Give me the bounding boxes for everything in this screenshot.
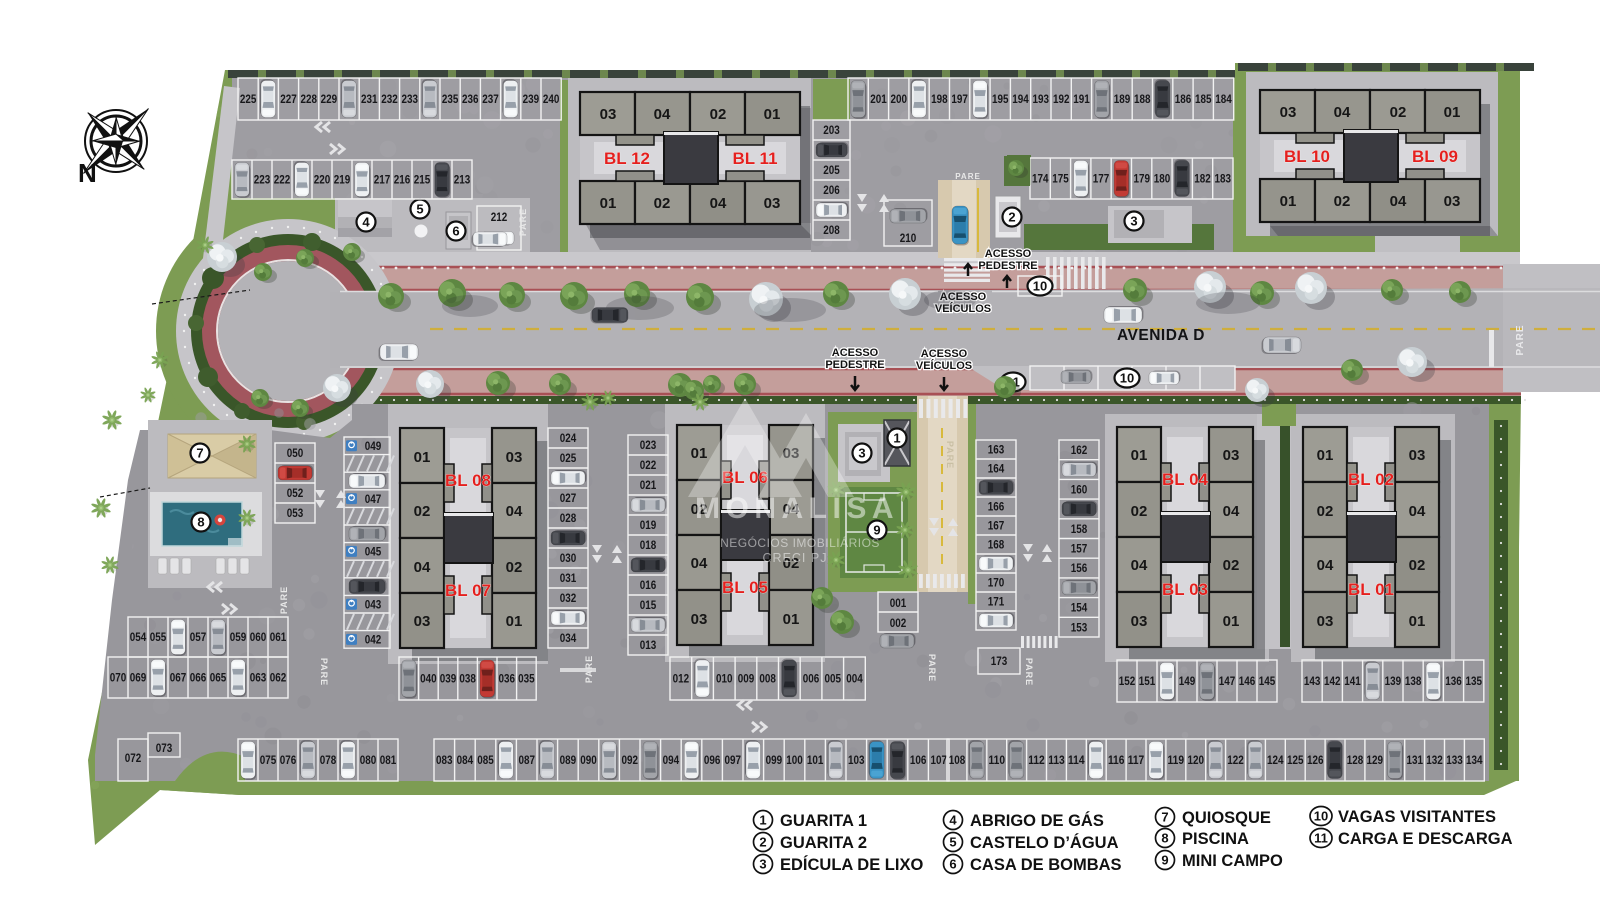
svg-text:151: 151	[1139, 676, 1156, 688]
svg-text:02: 02	[1131, 503, 1148, 520]
svg-text:02: 02	[1223, 557, 1240, 574]
svg-text:087: 087	[518, 755, 535, 767]
svg-text:PARE: PARE	[1515, 324, 1526, 355]
svg-text:067: 067	[170, 673, 187, 685]
svg-text:103: 103	[848, 755, 865, 767]
svg-text:042: 042	[365, 635, 382, 647]
svg-text:192: 192	[1053, 94, 1070, 106]
svg-text:021: 021	[640, 480, 657, 492]
svg-text:03: 03	[1444, 193, 1461, 210]
svg-text:AVENIDA D: AVENIDA D	[1117, 327, 1205, 344]
svg-text:125: 125	[1287, 755, 1304, 767]
svg-text:04: 04	[1223, 503, 1240, 520]
svg-text:053: 053	[287, 508, 304, 520]
svg-text:154: 154	[1071, 603, 1088, 615]
svg-text:031: 031	[560, 573, 577, 585]
svg-text:CRECI PJ: CRECI PJ	[763, 551, 828, 565]
svg-text:066: 066	[190, 673, 207, 685]
svg-text:162: 162	[1071, 445, 1088, 457]
svg-text:PARE: PARE	[927, 654, 937, 682]
svg-text:183: 183	[1215, 174, 1232, 186]
svg-text:004: 004	[846, 674, 863, 686]
svg-text:092: 092	[621, 755, 638, 767]
svg-text:016: 016	[640, 580, 657, 592]
svg-text:096: 096	[704, 755, 721, 767]
svg-text:198: 198	[931, 94, 948, 106]
svg-text:175: 175	[1052, 174, 1069, 186]
svg-text:203: 203	[823, 125, 840, 137]
svg-text:160: 160	[1071, 484, 1088, 496]
svg-text:04: 04	[710, 195, 727, 212]
svg-text:04: 04	[1317, 557, 1334, 574]
svg-text:PARE: PARE	[945, 441, 955, 469]
svg-text:034: 034	[560, 633, 577, 645]
svg-text:3: 3	[1130, 214, 1137, 229]
svg-text:PEDESTRE: PEDESTRE	[978, 260, 1037, 272]
svg-text:03: 03	[764, 195, 781, 212]
svg-text:108: 108	[949, 755, 966, 767]
svg-text:231: 231	[361, 94, 378, 106]
svg-text:233: 233	[401, 94, 418, 106]
svg-text:PARE: PARE	[518, 208, 528, 236]
svg-text:070: 070	[110, 673, 127, 685]
svg-text:120: 120	[1188, 755, 1205, 767]
svg-text:062: 062	[270, 673, 287, 685]
svg-text:132: 132	[1426, 755, 1443, 767]
svg-text:BL 08: BL 08	[445, 471, 491, 490]
svg-text:3: 3	[759, 857, 766, 872]
svg-text:BL 02: BL 02	[1348, 470, 1394, 489]
svg-text:170: 170	[988, 578, 1005, 590]
svg-text:164: 164	[988, 464, 1005, 476]
svg-text:2: 2	[759, 835, 766, 850]
svg-text:02: 02	[414, 503, 431, 520]
svg-text:CASTELO D’ÁGUA: CASTELO D’ÁGUA	[970, 833, 1119, 852]
svg-text:01: 01	[1131, 447, 1148, 464]
svg-text:4: 4	[362, 215, 370, 230]
svg-text:039: 039	[440, 674, 457, 686]
svg-text:008: 008	[759, 674, 776, 686]
svg-text:081: 081	[380, 755, 397, 767]
svg-text:009: 009	[738, 674, 755, 686]
svg-text:216: 216	[394, 175, 411, 187]
svg-text:185: 185	[1195, 94, 1212, 106]
svg-text:ABRIGO DE GÁS: ABRIGO DE GÁS	[970, 811, 1104, 830]
svg-text:8: 8	[1161, 831, 1168, 846]
svg-text:047: 047	[365, 494, 382, 506]
svg-text:072: 072	[125, 753, 142, 765]
svg-text:BL 03: BL 03	[1162, 580, 1208, 599]
svg-text:240: 240	[543, 94, 560, 106]
svg-text:100: 100	[786, 755, 803, 767]
svg-text:084: 084	[457, 755, 474, 767]
svg-text:217: 217	[374, 175, 391, 187]
svg-text:139: 139	[1385, 676, 1402, 688]
svg-text:01: 01	[1317, 447, 1334, 464]
svg-text:138: 138	[1405, 676, 1422, 688]
svg-text:VAGAS VISITANTES: VAGAS VISITANTES	[1338, 808, 1496, 826]
svg-text:02: 02	[1409, 557, 1426, 574]
svg-text:4: 4	[949, 813, 957, 828]
svg-text:02: 02	[710, 106, 727, 123]
svg-text:5: 5	[416, 202, 423, 217]
svg-text:02: 02	[1334, 193, 1351, 210]
svg-text:163: 163	[988, 445, 1005, 457]
svg-text:BL 07: BL 07	[445, 581, 491, 600]
svg-text:PARE: PARE	[584, 655, 594, 683]
svg-text:157: 157	[1071, 544, 1088, 556]
svg-text:049: 049	[365, 441, 382, 453]
svg-text:040: 040	[420, 674, 437, 686]
svg-text:02: 02	[1390, 104, 1407, 121]
svg-text:239: 239	[523, 94, 540, 106]
svg-text:BL 12: BL 12	[604, 149, 650, 168]
svg-text:050: 050	[287, 448, 304, 460]
svg-text:219: 219	[334, 175, 351, 187]
svg-text:10: 10	[1314, 809, 1328, 824]
svg-text:085: 085	[477, 755, 494, 767]
svg-text:01: 01	[1223, 613, 1240, 630]
svg-text:7: 7	[1161, 810, 1168, 825]
svg-text:106: 106	[910, 755, 927, 767]
svg-text:236: 236	[462, 94, 479, 106]
svg-text:141: 141	[1344, 676, 1361, 688]
svg-text:04: 04	[691, 555, 708, 572]
svg-text:MINI CAMPO: MINI CAMPO	[1182, 852, 1283, 870]
svg-text:015: 015	[640, 600, 657, 612]
svg-text:191: 191	[1073, 94, 1090, 106]
svg-text:153: 153	[1071, 622, 1088, 634]
svg-text:023: 023	[640, 440, 657, 452]
svg-text:02: 02	[1317, 503, 1334, 520]
svg-text:212: 212	[491, 212, 508, 224]
svg-text:122: 122	[1227, 755, 1244, 767]
svg-text:1: 1	[759, 813, 766, 828]
svg-text:3: 3	[858, 446, 865, 461]
svg-text:156: 156	[1071, 563, 1088, 575]
svg-text:PISCINA: PISCINA	[1182, 830, 1249, 848]
svg-text:065: 065	[210, 673, 227, 685]
svg-text:145: 145	[1259, 676, 1276, 688]
svg-text:133: 133	[1446, 755, 1463, 767]
svg-text:126: 126	[1307, 755, 1324, 767]
svg-text:147: 147	[1219, 676, 1236, 688]
svg-text:001: 001	[890, 598, 907, 610]
svg-text:168: 168	[988, 540, 1005, 552]
svg-text:173: 173	[991, 656, 1008, 668]
svg-text:117: 117	[1128, 755, 1145, 767]
svg-text:03: 03	[1317, 613, 1334, 630]
svg-text:BL 10: BL 10	[1284, 147, 1330, 166]
svg-text:197: 197	[951, 94, 968, 106]
svg-text:090: 090	[580, 755, 597, 767]
svg-text:02: 02	[506, 559, 523, 576]
svg-text:213: 213	[454, 175, 471, 187]
svg-text:131: 131	[1406, 755, 1423, 767]
svg-text:129: 129	[1367, 755, 1384, 767]
svg-text:PARE: PARE	[1024, 658, 1034, 686]
svg-text:158: 158	[1071, 524, 1088, 536]
svg-text:057: 057	[190, 632, 207, 644]
svg-text:167: 167	[988, 521, 1005, 533]
svg-text:116: 116	[1108, 755, 1125, 767]
svg-text:142: 142	[1324, 676, 1341, 688]
svg-text:NEGÓCIOS IMOBILIÁRIOS: NEGÓCIOS IMOBILIÁRIOS	[720, 535, 880, 550]
svg-text:7: 7	[196, 446, 203, 461]
svg-text:10: 10	[1033, 279, 1047, 294]
svg-text:136: 136	[1445, 676, 1462, 688]
svg-text:059: 059	[230, 632, 247, 644]
svg-text:03: 03	[1280, 104, 1297, 121]
svg-text:195: 195	[992, 94, 1009, 106]
svg-text:078: 078	[320, 755, 337, 767]
svg-text:9: 9	[1161, 853, 1168, 868]
svg-text:04: 04	[1409, 503, 1426, 520]
svg-text:01: 01	[506, 613, 523, 630]
svg-text:152: 152	[1119, 676, 1136, 688]
svg-text:134: 134	[1466, 755, 1483, 767]
svg-text:189: 189	[1114, 94, 1131, 106]
svg-text:055: 055	[150, 632, 167, 644]
svg-text:025: 025	[560, 453, 577, 465]
svg-text:01: 01	[1280, 193, 1297, 210]
svg-text:03: 03	[414, 613, 431, 630]
svg-text:PARE: PARE	[319, 658, 329, 686]
svg-text:135: 135	[1465, 676, 1482, 688]
svg-text:11: 11	[1314, 831, 1328, 846]
svg-text:10: 10	[1120, 371, 1134, 386]
svg-text:119: 119	[1168, 755, 1185, 767]
svg-text:200: 200	[891, 94, 908, 106]
svg-text:094: 094	[663, 755, 680, 767]
svg-text:BL 11: BL 11	[732, 149, 777, 168]
svg-text:235: 235	[442, 94, 459, 106]
svg-text:076: 076	[280, 755, 297, 767]
svg-text:110: 110	[989, 755, 1006, 767]
svg-text:01: 01	[414, 449, 431, 466]
svg-text:177: 177	[1093, 174, 1110, 186]
svg-text:188: 188	[1134, 94, 1151, 106]
svg-text:097: 097	[724, 755, 741, 767]
svg-text:186: 186	[1175, 94, 1192, 106]
svg-text:036: 036	[499, 674, 516, 686]
svg-text:045: 045	[365, 547, 382, 559]
svg-text:1: 1	[893, 431, 900, 446]
svg-text:146: 146	[1239, 676, 1256, 688]
svg-text:019: 019	[640, 520, 657, 532]
svg-text:005: 005	[825, 674, 842, 686]
svg-text:GUARITA 2: GUARITA 2	[780, 834, 867, 852]
svg-text:193: 193	[1033, 94, 1050, 106]
svg-text:179: 179	[1133, 174, 1150, 186]
svg-text:022: 022	[640, 460, 657, 472]
svg-text:01: 01	[600, 195, 617, 212]
svg-text:02: 02	[654, 195, 671, 212]
svg-text:174: 174	[1032, 174, 1049, 186]
svg-text:04: 04	[1131, 557, 1148, 574]
svg-text:063: 063	[250, 673, 267, 685]
svg-text:PARE: PARE	[955, 172, 981, 181]
svg-text:227: 227	[280, 94, 297, 106]
svg-text:089: 089	[560, 755, 577, 767]
svg-text:GUARITA 1: GUARITA 1	[780, 812, 867, 830]
svg-text:006: 006	[803, 674, 820, 686]
svg-text:010: 010	[716, 674, 733, 686]
svg-text:222: 222	[274, 175, 291, 187]
svg-text:018: 018	[640, 540, 657, 552]
svg-text:208: 208	[823, 225, 840, 237]
svg-text:099: 099	[766, 755, 783, 767]
svg-text:01: 01	[783, 611, 800, 628]
svg-text:EDÍCULA DE LIXO: EDÍCULA DE LIXO	[780, 855, 923, 874]
svg-text:01: 01	[691, 445, 708, 462]
svg-text:BL 04: BL 04	[1162, 470, 1209, 489]
svg-text:035: 035	[518, 674, 535, 686]
svg-text:107: 107	[930, 755, 947, 767]
svg-text:03: 03	[1131, 613, 1148, 630]
svg-text:04: 04	[1334, 104, 1351, 121]
svg-text:01: 01	[1444, 104, 1461, 121]
svg-text:03: 03	[600, 106, 617, 123]
svg-text:PEDESTRE: PEDESTRE	[825, 359, 884, 371]
svg-text:04: 04	[654, 106, 671, 123]
svg-text:194: 194	[1012, 94, 1029, 106]
svg-text:ACESSO: ACESSO	[832, 347, 879, 359]
svg-text:128: 128	[1347, 755, 1364, 767]
svg-text:205: 205	[823, 165, 840, 177]
svg-text:8: 8	[197, 515, 204, 530]
svg-text:201: 201	[870, 94, 887, 106]
svg-text:03: 03	[1409, 447, 1426, 464]
svg-text:112: 112	[1028, 755, 1045, 767]
svg-text:069: 069	[130, 673, 147, 685]
svg-text:180: 180	[1154, 174, 1171, 186]
svg-text:N: N	[78, 158, 97, 188]
svg-text:210: 210	[900, 233, 917, 245]
svg-text:MONALISA: MONALISA	[695, 492, 899, 525]
svg-text:6: 6	[949, 857, 956, 872]
svg-text:BL 01: BL 01	[1348, 580, 1394, 599]
svg-text:01: 01	[764, 106, 781, 123]
svg-text:04: 04	[414, 559, 431, 576]
svg-text:QUIOSQUE: QUIOSQUE	[1182, 809, 1271, 827]
svg-text:032: 032	[560, 593, 577, 605]
svg-text:PARE: PARE	[279, 586, 289, 614]
svg-text:6: 6	[452, 224, 459, 239]
svg-text:04: 04	[506, 503, 523, 520]
svg-text:027: 027	[560, 493, 577, 505]
svg-text:228: 228	[300, 94, 317, 106]
svg-text:083: 083	[436, 755, 453, 767]
svg-text:012: 012	[673, 674, 690, 686]
svg-text:182: 182	[1194, 174, 1211, 186]
svg-text:03: 03	[506, 449, 523, 466]
svg-text:043: 043	[365, 599, 382, 611]
svg-text:225: 225	[240, 94, 257, 106]
svg-text:220: 220	[314, 175, 331, 187]
svg-text:5: 5	[949, 835, 956, 850]
svg-text:166: 166	[988, 502, 1005, 514]
svg-text:075: 075	[260, 755, 277, 767]
svg-text:073: 073	[156, 743, 173, 755]
svg-text:143: 143	[1304, 676, 1321, 688]
svg-text:229: 229	[321, 94, 338, 106]
svg-text:01: 01	[1409, 613, 1426, 630]
svg-text:04: 04	[1390, 193, 1407, 210]
svg-text:ACESSO: ACESSO	[921, 348, 968, 360]
svg-text:124: 124	[1267, 755, 1284, 767]
svg-text:024: 024	[560, 433, 577, 445]
svg-text:114: 114	[1068, 755, 1085, 767]
svg-text:013: 013	[640, 640, 657, 652]
svg-text:CARGA E DESCARGA: CARGA E DESCARGA	[1338, 830, 1513, 848]
svg-text:171: 171	[988, 597, 1005, 609]
svg-text:232: 232	[381, 94, 398, 106]
svg-text:03: 03	[691, 611, 708, 628]
svg-text:VEÍCULOS: VEÍCULOS	[916, 359, 972, 372]
svg-text:BL 09: BL 09	[1412, 147, 1458, 166]
svg-text:03: 03	[1223, 447, 1240, 464]
svg-text:054: 054	[130, 632, 147, 644]
svg-text:206: 206	[823, 185, 840, 197]
svg-text:BL 05: BL 05	[722, 578, 768, 597]
svg-text:101: 101	[807, 755, 824, 767]
svg-text:061: 061	[270, 632, 287, 644]
svg-text:060: 060	[250, 632, 267, 644]
svg-text:149: 149	[1179, 676, 1196, 688]
svg-text:113: 113	[1048, 755, 1065, 767]
svg-text:2: 2	[1008, 210, 1015, 225]
svg-text:CASA DE BOMBAS: CASA DE BOMBAS	[970, 856, 1122, 874]
svg-text:215: 215	[414, 175, 431, 187]
svg-text:028: 028	[560, 513, 577, 525]
svg-text:052: 052	[287, 488, 304, 500]
svg-text:002: 002	[890, 618, 907, 630]
svg-text:038: 038	[459, 674, 476, 686]
svg-text:ACESSO: ACESSO	[985, 248, 1032, 260]
svg-text:080: 080	[360, 755, 377, 767]
svg-text:223: 223	[254, 175, 271, 187]
svg-text:237: 237	[482, 94, 499, 106]
svg-text:030: 030	[560, 553, 577, 565]
svg-text:184: 184	[1215, 94, 1232, 106]
